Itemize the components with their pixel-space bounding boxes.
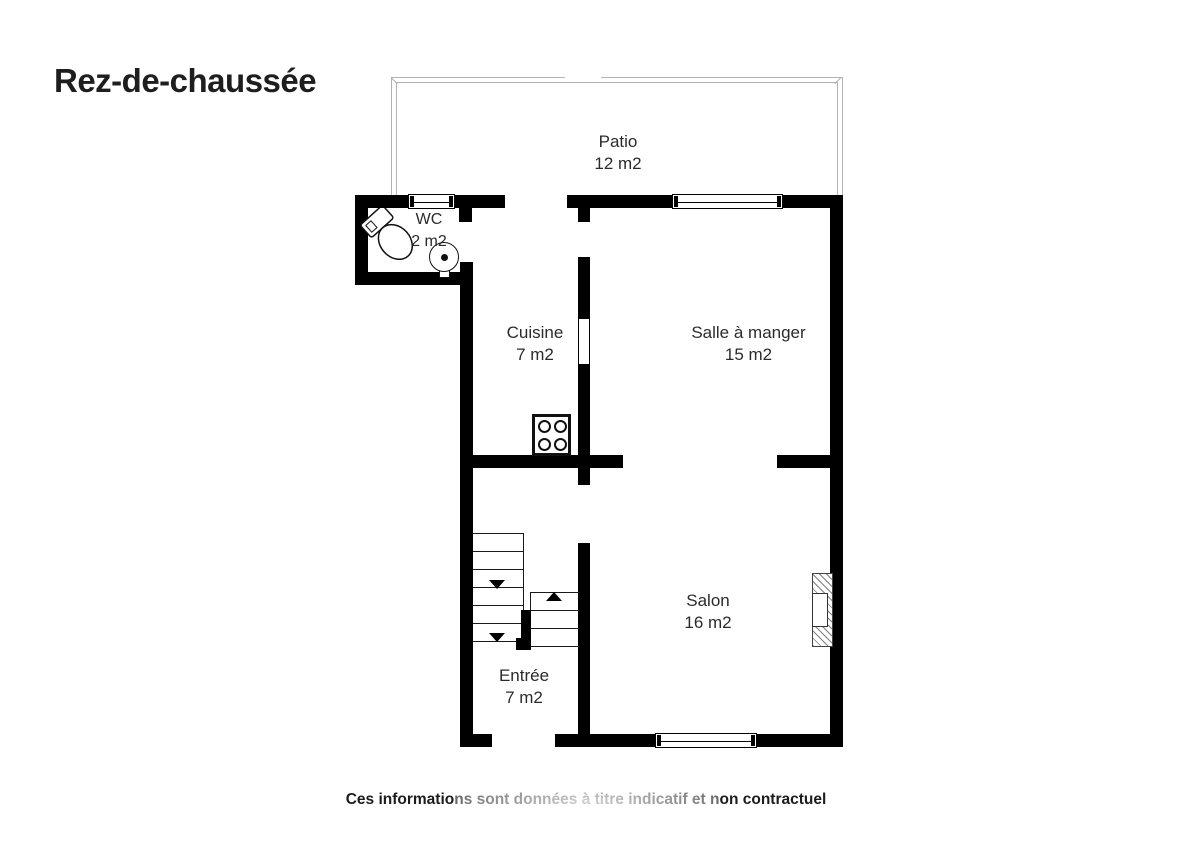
window-icon-wc (408, 194, 455, 209)
fireplace-hearth (812, 593, 828, 627)
stairs-arrow-down-icon (489, 580, 505, 589)
room-name: Salle à manger (656, 322, 841, 344)
window-cap (751, 735, 755, 746)
room-name: WC (389, 209, 469, 231)
window-cap (449, 196, 453, 207)
room-label-patio: Patio 12 m2 (538, 131, 698, 175)
room-label-salle-a-manger: Salle à manger 15 m2 (656, 322, 841, 366)
window-icon-dining (672, 194, 783, 209)
wall-divider1-upper (578, 257, 590, 318)
wall-wc-bottom (355, 272, 473, 285)
stove-burner (538, 420, 551, 433)
room-label-entree: Entrée 7 m2 (464, 665, 584, 709)
room-area: 2 m2 (389, 231, 469, 253)
room-label-wc: WC 2 m2 (389, 209, 469, 253)
room-area: 16 m2 (648, 612, 768, 634)
stove-burner (538, 438, 551, 451)
stove-icon (532, 414, 571, 456)
stairs-arrow-down-icon (489, 633, 505, 642)
room-name: Cuisine (475, 322, 595, 344)
stove-burner (554, 438, 567, 451)
stairs-center-post-foot (516, 638, 531, 650)
room-area: 15 m2 (656, 344, 841, 366)
watermark-fade (455, 779, 720, 823)
room-label-cuisine: Cuisine 7 m2 (475, 322, 595, 366)
wall-horizontal-right (777, 455, 843, 468)
watermark-patch (565, 70, 601, 80)
sink-drain-icon (441, 254, 448, 261)
window-cap (777, 196, 781, 207)
room-area: 7 m2 (464, 687, 584, 709)
wall-right (830, 195, 843, 747)
window-glass (414, 202, 449, 203)
wall-divider1-stub-top (578, 195, 590, 222)
floor-title: Rez-de-chaussée (54, 62, 316, 100)
window-icon-salon (655, 733, 757, 748)
room-name: Entrée (464, 665, 584, 687)
wall-horizontal-left (460, 455, 623, 468)
stairs-arrow-up-icon (546, 592, 562, 601)
room-area: 7 m2 (475, 344, 595, 366)
room-area: 12 m2 (538, 153, 698, 175)
stove-burner (554, 420, 567, 433)
room-label-salon: Salon 16 m2 (648, 590, 768, 634)
wall-divider1-lower (578, 365, 590, 456)
window-glass (661, 741, 751, 742)
window-glass (678, 202, 777, 203)
room-name: Patio (538, 131, 698, 153)
room-name: Salon (648, 590, 768, 612)
